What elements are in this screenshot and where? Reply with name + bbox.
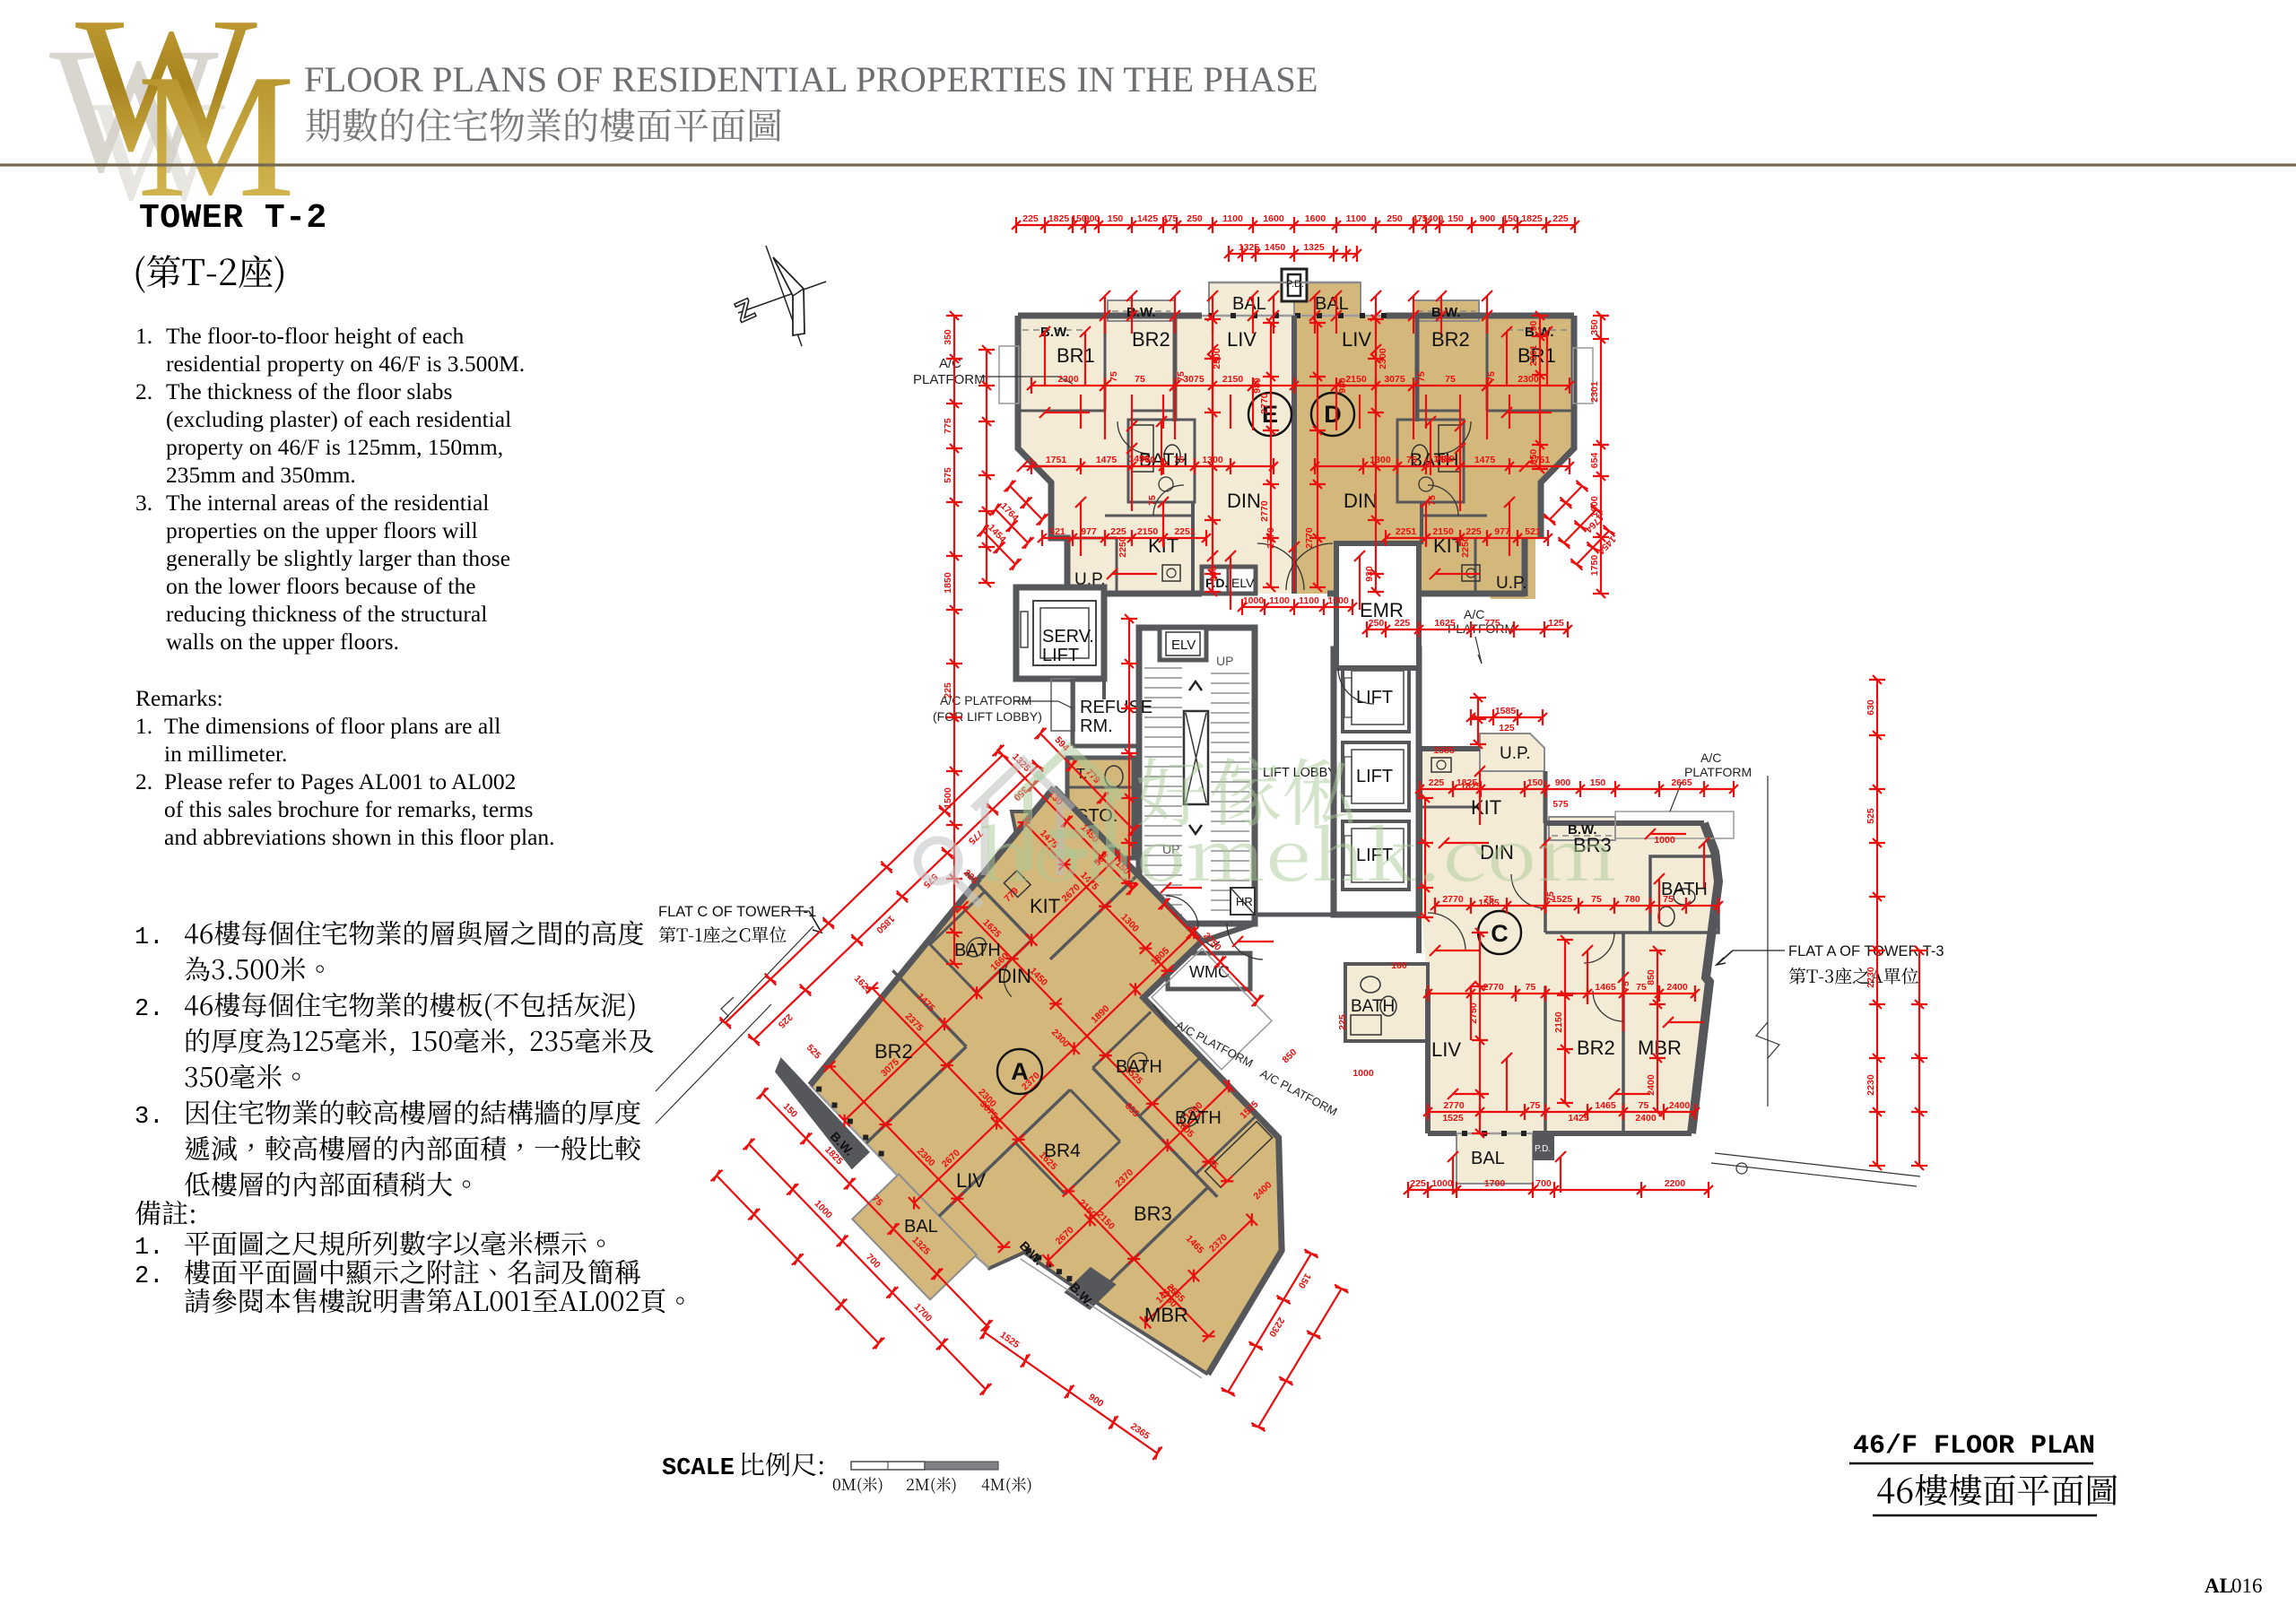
svg-text:75: 75 <box>1545 891 1556 902</box>
svg-text:2770: 2770 <box>1259 393 1270 414</box>
svg-text:1000: 1000 <box>1654 835 1675 846</box>
svg-text:TOWER T-2: TOWER T-2 <box>139 199 327 238</box>
svg-text:75: 75 <box>1416 371 1427 382</box>
svg-text:75: 75 <box>1526 982 1536 993</box>
svg-text:1.: 1. <box>135 713 152 739</box>
svg-text:980: 980 <box>1252 378 1263 394</box>
svg-text:Please refer to Pages AL001 to: Please refer to Pages AL001 to AL002 <box>164 768 516 794</box>
svg-text:property on 46/F is 125mm, 150: property on 46/F is 125mm, 150mm, <box>166 434 503 460</box>
svg-text:225: 225 <box>1022 213 1039 224</box>
svg-text:977: 977 <box>1494 526 1510 537</box>
svg-text:of this sales brochure for rem: of this sales brochure for remarks, term… <box>164 796 533 822</box>
svg-text:160: 160 <box>1391 960 1407 971</box>
svg-text:walls on the upper floors.: walls on the upper floors. <box>166 629 399 655</box>
svg-text:75: 75 <box>1591 894 1602 905</box>
svg-text:2.: 2. <box>135 768 152 794</box>
svg-text:2200: 2200 <box>1665 1178 1686 1189</box>
svg-text:225: 225 <box>1465 526 1482 537</box>
svg-text:2230: 2230 <box>1865 967 1876 988</box>
svg-text:780: 780 <box>1624 894 1640 905</box>
svg-text:BR2: BR2 <box>1577 1037 1615 1059</box>
svg-text:900: 900 <box>1084 213 1100 224</box>
svg-text:1585: 1585 <box>1433 745 1455 756</box>
svg-text:225: 225 <box>943 682 953 699</box>
svg-text:1.: 1. <box>135 1235 163 1262</box>
svg-text:250: 250 <box>1187 213 1203 224</box>
svg-text:on the lower floors because of: on the lower floors because of the <box>166 573 476 599</box>
svg-text:1465: 1465 <box>1595 982 1616 993</box>
svg-text:2150: 2150 <box>1137 526 1159 537</box>
svg-text:BR2: BR2 <box>1132 328 1170 351</box>
svg-text:75: 75 <box>1486 371 1497 382</box>
svg-text:250: 250 <box>1369 618 1385 629</box>
svg-text:SCALE: SCALE <box>662 1455 735 1482</box>
svg-text:BR3: BR3 <box>1134 1202 1172 1225</box>
svg-text:2300: 2300 <box>1057 374 1079 385</box>
svg-text:1475: 1475 <box>1096 455 1118 465</box>
svg-text:1585: 1585 <box>1495 706 1517 716</box>
svg-text:PLATFORM: PLATFORM <box>1684 765 1752 779</box>
svg-text:2.: 2. <box>135 996 163 1023</box>
svg-text:2770: 2770 <box>1304 527 1315 549</box>
svg-text:reducing thickness of the stru: reducing thickness of the structural <box>166 601 487 627</box>
svg-text:75: 75 <box>1147 495 1158 506</box>
svg-text:KIT: KIT <box>1030 895 1060 917</box>
svg-text:46/F FLOOR PLAN: 46/F FLOOR PLAN <box>1853 1431 2095 1462</box>
svg-text:A/C: A/C <box>1700 751 1721 765</box>
svg-text:BATH: BATH <box>1175 1108 1222 1128</box>
svg-text:1465: 1465 <box>1595 1100 1616 1111</box>
svg-text:The internal areas of the resi: The internal areas of the residential <box>166 490 489 516</box>
svg-text:1425: 1425 <box>1137 213 1159 224</box>
svg-text:125: 125 <box>1548 618 1564 629</box>
svg-text:75: 75 <box>1427 495 1438 506</box>
svg-text:1100: 1100 <box>1222 213 1243 224</box>
svg-text:2150: 2150 <box>1345 374 1367 385</box>
svg-text:1825: 1825 <box>1521 213 1543 224</box>
svg-text:2251: 2251 <box>1174 526 1196 537</box>
svg-text:U.P.: U.P. <box>1496 574 1527 593</box>
svg-text:MBR: MBR <box>1144 1304 1188 1326</box>
svg-text:75: 75 <box>1445 374 1456 385</box>
svg-text:125: 125 <box>1499 723 1515 733</box>
svg-text:SERV.: SERV. <box>1042 627 1094 647</box>
svg-text:LIFT: LIFT <box>1042 646 1079 665</box>
svg-text:LIFT: LIFT <box>1356 846 1393 865</box>
svg-text:generally be slightly larger t: generally be slightly larger than those <box>166 545 510 571</box>
svg-text:FLAT C OF TOWER T-1: FLAT C OF TOWER T-1 <box>658 904 816 920</box>
svg-text:in millimeter.: in millimeter. <box>164 741 287 767</box>
svg-text:75: 75 <box>1174 455 1185 465</box>
svg-text:1625: 1625 <box>1434 618 1456 629</box>
svg-text:2770: 2770 <box>1259 500 1270 522</box>
svg-text:2665: 2665 <box>1671 777 1692 788</box>
svg-text:ELV: ELV <box>1171 638 1196 653</box>
svg-text:2300: 2300 <box>1378 348 1388 369</box>
svg-text:BAL: BAL <box>904 1217 938 1237</box>
svg-text:75: 75 <box>1639 1100 1649 1111</box>
svg-text:1325: 1325 <box>1303 242 1325 253</box>
svg-text:75: 75 <box>1135 374 1145 385</box>
svg-text:521: 521 <box>1049 526 1065 537</box>
svg-text:1000: 1000 <box>1243 595 1265 606</box>
svg-text:1100: 1100 <box>1346 213 1367 224</box>
svg-text:2400: 2400 <box>1646 1074 1657 1096</box>
svg-text:1425: 1425 <box>1568 1113 1589 1124</box>
svg-text:1850: 1850 <box>943 572 953 594</box>
svg-text:2770: 2770 <box>1265 527 1276 549</box>
svg-text:930: 930 <box>1364 566 1375 582</box>
svg-text:1825: 1825 <box>1048 213 1070 224</box>
svg-text:525: 525 <box>1865 808 1876 824</box>
svg-text:250: 250 <box>1387 213 1403 224</box>
svg-text:2250: 2250 <box>1460 536 1471 558</box>
svg-text:1525: 1525 <box>1442 1113 1464 1124</box>
svg-text:700: 700 <box>1535 1178 1552 1189</box>
svg-text:The thickness of the floor sla: The thickness of the floor slabs <box>166 378 452 404</box>
svg-text:654: 654 <box>1589 453 1600 469</box>
svg-text:residential property on 46/F i: residential property on 46/F is 3.500M. <box>166 351 525 377</box>
svg-text:LIFT: LIFT <box>1356 767 1393 786</box>
svg-text:75: 75 <box>1176 371 1187 382</box>
svg-text:3075: 3075 <box>1384 374 1405 385</box>
svg-text:BR2: BR2 <box>874 1040 913 1063</box>
svg-text:1325: 1325 <box>1239 242 1260 253</box>
svg-text:521: 521 <box>1525 526 1541 537</box>
svg-text:850: 850 <box>1646 969 1657 985</box>
svg-text:BR1: BR1 <box>1057 344 1095 367</box>
svg-text:1825: 1825 <box>1460 781 1482 792</box>
svg-text:1100: 1100 <box>1269 595 1290 606</box>
svg-text:and abbreviations shown in thi: and abbreviations shown in this floor pl… <box>164 824 555 850</box>
svg-text:1000: 1000 <box>1431 1178 1453 1189</box>
svg-text:225: 225 <box>1337 1014 1348 1030</box>
svg-text:C: C <box>1491 920 1509 947</box>
svg-text:75: 75 <box>1109 371 1119 382</box>
svg-text:225: 225 <box>1110 526 1126 537</box>
svg-text:1600: 1600 <box>1263 213 1284 224</box>
svg-text:2.: 2. <box>135 378 152 404</box>
svg-text:AL: AL <box>2205 1575 2233 1597</box>
svg-text:DIN: DIN <box>1227 490 1261 512</box>
svg-text:775: 775 <box>1484 618 1500 629</box>
svg-text:2770: 2770 <box>1443 1100 1465 1111</box>
svg-text:LIV: LIV <box>1342 328 1371 351</box>
svg-text:225: 225 <box>1429 777 1445 788</box>
svg-text:BAL: BAL <box>1232 294 1266 314</box>
svg-text:980: 980 <box>1337 378 1348 394</box>
svg-text:BR2: BR2 <box>1431 328 1470 351</box>
svg-text:UP: UP <box>1216 654 1233 668</box>
svg-text:225: 225 <box>1552 213 1569 224</box>
svg-text:930: 930 <box>1208 566 1219 582</box>
svg-text:90: 90 <box>1528 321 1539 332</box>
svg-text:LIFT: LIFT <box>1356 688 1393 707</box>
svg-text:016: 016 <box>2231 1575 2263 1597</box>
svg-text:PLATFORM: PLATFORM <box>913 372 986 387</box>
svg-text:ELV: ELV <box>1231 576 1255 590</box>
svg-text:The dimensions of floor plans: The dimensions of floor plans are all <box>164 713 500 739</box>
svg-text:P.D.: P.D. <box>1286 279 1304 290</box>
svg-text:KIT: KIT <box>1471 796 1501 819</box>
svg-text:RM.: RM. <box>1080 716 1113 736</box>
svg-text:1100: 1100 <box>1299 595 1319 606</box>
svg-text:75: 75 <box>1530 1100 1541 1111</box>
svg-text:2.: 2. <box>135 1263 163 1290</box>
svg-text:The floor-to-floor height of e: The floor-to-floor height of each <box>166 323 465 349</box>
svg-text:BATH: BATH <box>954 941 1001 960</box>
svg-text:2400: 2400 <box>1635 1113 1657 1124</box>
svg-text:225: 225 <box>1410 1178 1426 1189</box>
svg-text:2250: 2250 <box>1118 536 1128 558</box>
svg-text:2150: 2150 <box>1432 526 1454 537</box>
svg-text:2230: 2230 <box>1865 1074 1876 1096</box>
svg-text:1751: 1751 <box>1046 455 1067 465</box>
svg-text:150: 150 <box>1448 213 1464 224</box>
svg-text:150: 150 <box>1527 777 1544 788</box>
svg-text:75: 75 <box>1663 894 1674 905</box>
svg-text:D: D <box>1324 401 1342 428</box>
svg-text:LIV: LIV <box>1431 1038 1461 1061</box>
svg-text:2770: 2770 <box>1442 894 1464 905</box>
svg-text:1585: 1585 <box>1478 898 1500 908</box>
svg-text:A: A <box>1011 1058 1029 1085</box>
svg-text:630: 630 <box>1865 699 1876 716</box>
svg-text:1600: 1600 <box>1305 213 1326 224</box>
svg-text:150: 150 <box>1502 213 1518 224</box>
svg-text:2750: 2750 <box>1468 1002 1479 1024</box>
svg-text:2251: 2251 <box>1396 526 1417 537</box>
svg-text:Remarks:: Remarks: <box>135 685 223 711</box>
svg-text:900: 900 <box>1555 777 1571 788</box>
svg-text:1475: 1475 <box>1474 455 1496 465</box>
svg-text:350: 350 <box>943 329 953 345</box>
svg-text:1450: 1450 <box>1433 454 1455 464</box>
svg-text:LIV: LIV <box>956 1169 986 1192</box>
svg-text:properties on the upper floors: properties on the upper floors will <box>166 517 478 543</box>
svg-text:1450: 1450 <box>1265 242 1286 253</box>
svg-text:BATH: BATH <box>1116 1057 1162 1077</box>
svg-text:575: 575 <box>1552 799 1569 810</box>
svg-text:977: 977 <box>1081 526 1097 537</box>
svg-text:150: 150 <box>1108 213 1124 224</box>
svg-text:900: 900 <box>1480 213 1496 224</box>
svg-text:2300: 2300 <box>1212 348 1222 369</box>
svg-text:775: 775 <box>943 418 953 434</box>
svg-text:1.: 1. <box>135 924 163 951</box>
svg-text:75: 75 <box>1621 981 1631 992</box>
svg-text:1700: 1700 <box>1484 1178 1506 1189</box>
svg-text:350: 350 <box>1589 319 1600 335</box>
svg-text:(excluding plaster) of each re: (excluding plaster) of each residential <box>166 406 511 432</box>
svg-text:2301: 2301 <box>1528 345 1539 367</box>
svg-text:B.W.: B.W. <box>1431 305 1461 320</box>
svg-text:1000: 1000 <box>1352 1068 1374 1079</box>
svg-text:DIN: DIN <box>997 965 1031 987</box>
svg-text:FLOOR PLANS OF RESIDENTIAL PRO: FLOOR PLANS OF RESIDENTIAL PROPERTIES IN… <box>304 59 1318 100</box>
svg-text:A/C: A/C <box>1464 607 1484 621</box>
svg-text:DIN: DIN <box>1344 490 1378 512</box>
svg-text:2400: 2400 <box>1666 982 1688 993</box>
svg-text:MBR: MBR <box>1638 1037 1682 1059</box>
svg-text:2301: 2301 <box>1589 381 1600 403</box>
svg-text:1000: 1000 <box>1327 595 1349 606</box>
svg-text:BR4: BR4 <box>1044 1141 1081 1161</box>
svg-text:75: 75 <box>1406 455 1417 465</box>
svg-text:BATH: BATH <box>1351 997 1395 1016</box>
svg-text:3.: 3. <box>135 1104 163 1131</box>
svg-text:225: 225 <box>1395 618 1411 629</box>
svg-text:U.P.: U.P. <box>1500 744 1531 763</box>
svg-text:1450: 1450 <box>1128 454 1150 464</box>
svg-text:150: 150 <box>1590 777 1606 788</box>
svg-text:2150: 2150 <box>1553 1011 1564 1033</box>
svg-text:3.: 3. <box>135 490 152 516</box>
svg-text:475: 475 <box>1162 213 1178 224</box>
svg-text:BAL: BAL <box>1471 1149 1505 1168</box>
svg-text:2400: 2400 <box>1669 1100 1691 1111</box>
svg-text:575: 575 <box>943 467 953 483</box>
svg-text:235mm and 350mm.: 235mm and 350mm. <box>166 462 356 488</box>
svg-text:2150: 2150 <box>1222 374 1244 385</box>
svg-text:HR: HR <box>1236 895 1253 908</box>
svg-text:1.: 1. <box>135 323 152 349</box>
svg-text:1750: 1750 <box>1589 555 1600 577</box>
svg-text:1400: 1400 <box>1422 213 1444 224</box>
svg-text:P.D.: P.D. <box>1535 1144 1551 1154</box>
